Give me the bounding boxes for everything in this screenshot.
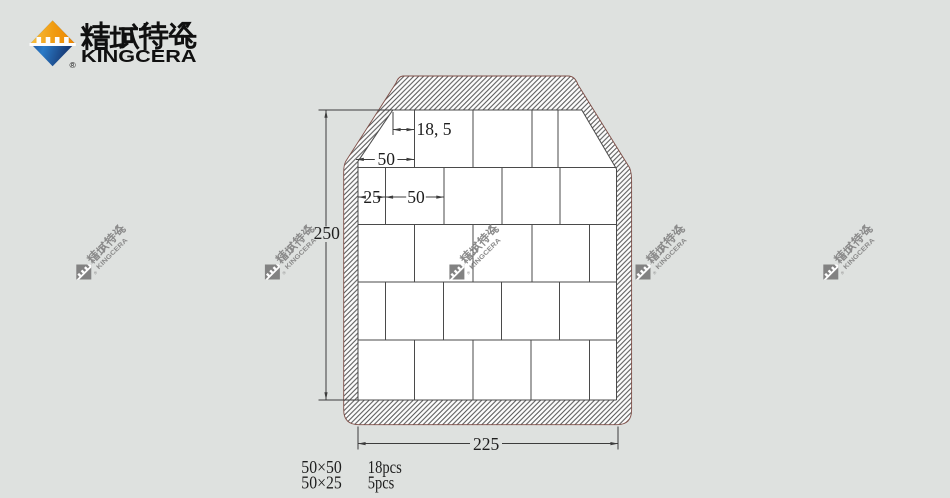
svg-text:50×25: 50×25	[301, 473, 342, 493]
svg-text:KINGCERA: KINGCERA	[81, 46, 197, 66]
svg-text:225: 225	[473, 434, 500, 454]
svg-text:18, 5: 18, 5	[417, 119, 452, 139]
svg-text:5pcs: 5pcs	[368, 473, 395, 493]
svg-text:250: 250	[314, 223, 341, 243]
svg-text:50: 50	[407, 187, 425, 207]
svg-text:®: ®	[70, 60, 77, 70]
svg-text:25: 25	[363, 187, 381, 207]
svg-text:50: 50	[378, 149, 396, 169]
